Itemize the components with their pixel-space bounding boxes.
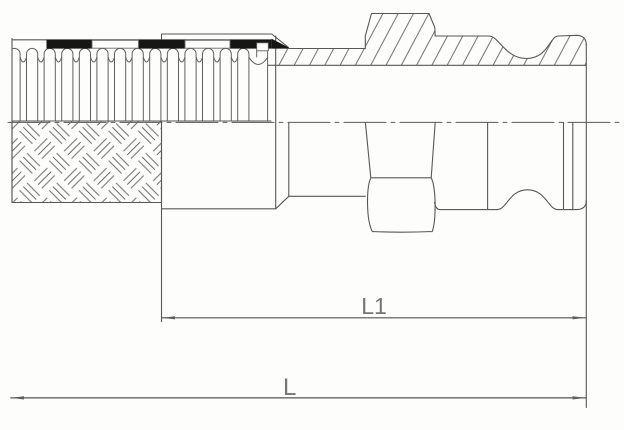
svg-text:L: L <box>283 374 296 401</box>
svg-text:L1: L1 <box>361 293 387 319</box>
